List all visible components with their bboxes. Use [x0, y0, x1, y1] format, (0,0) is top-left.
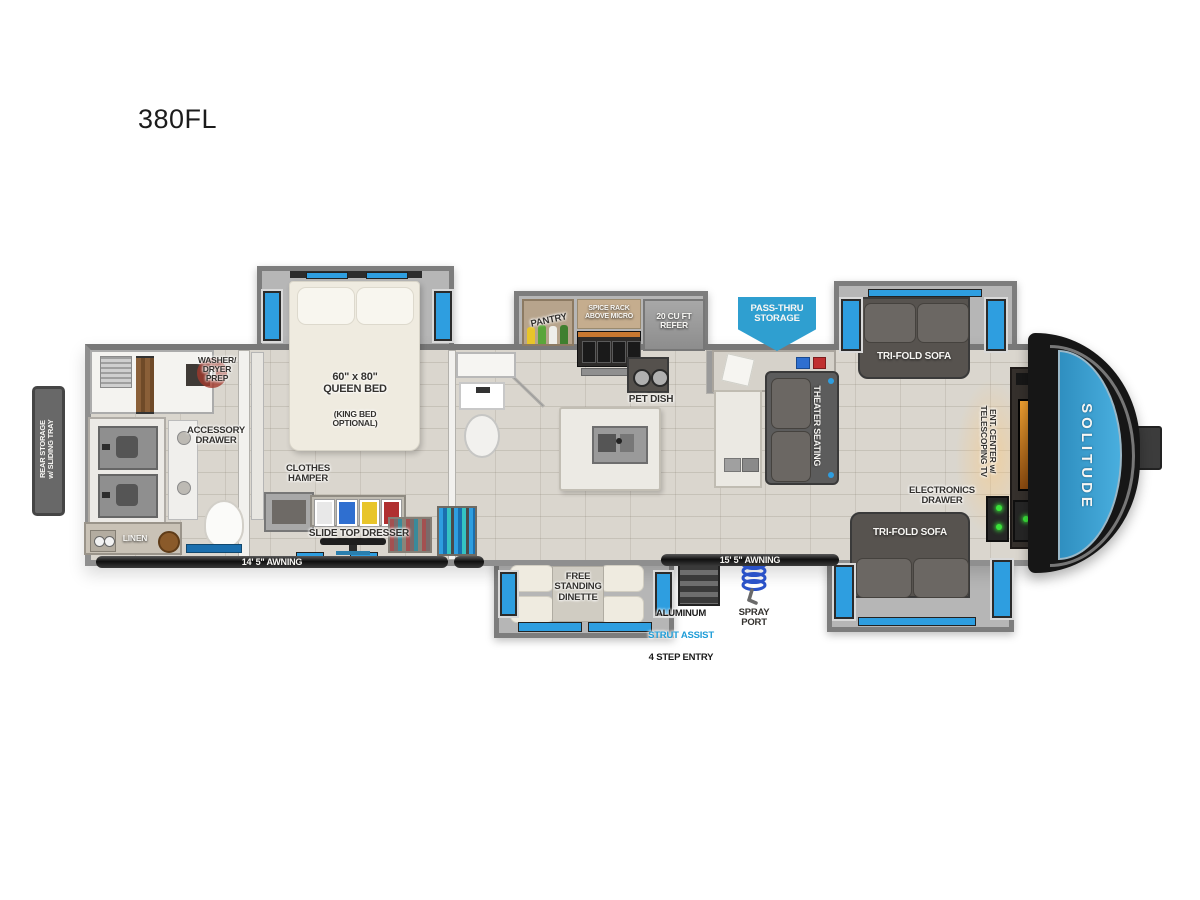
bedroom-tv-stand — [320, 538, 386, 556]
electronics-panel-1 — [986, 496, 1009, 542]
spice-rack-label: SPICE RACK ABOVE MICRO — [575, 305, 643, 320]
vanity-sink-2 — [98, 474, 158, 518]
sofa-top-window-right — [986, 299, 1006, 351]
floorplan-canvas: 380FL REAR STORAGE w/ SLIDING TRAY WAS — [0, 0, 1200, 900]
awning-right-label: 15' 5" AWNING — [661, 554, 839, 566]
tri-fold-sofa-top-label: TRI-FOLD SOFA — [852, 352, 976, 363]
entry-line1: ALUMINUM — [638, 609, 724, 620]
awning-left-label: 14' 5" AWNING — [96, 556, 448, 568]
entry-line2: STRUT ASSIST — [638, 631, 724, 642]
bedroom-slide-window-strip — [306, 272, 348, 279]
pet-dish-drawer — [627, 357, 669, 393]
sofa-top-window-strip — [868, 289, 982, 297]
ent-center-label: ENT. CENTER w/ TELESCOPING TV — [979, 383, 997, 499]
sofa-bottom-window-strip — [858, 617, 976, 626]
awning-left-stub — [454, 556, 484, 568]
entry-label: ALUMINUM STRUT ASSIST 4 STEP ENTRY — [638, 598, 724, 674]
bed-label: 60" x 80" QUEEN BED (KING BED OPTIONAL) — [300, 360, 410, 440]
linen-label: LINEN — [118, 534, 152, 543]
bedroom-window-right — [434, 291, 452, 341]
refer-label: 20 CU FT REFER — [643, 312, 705, 330]
rear-storage-tray: REAR STORAGE w/ SLIDING TRAY — [32, 386, 65, 516]
electronics-drawer-label: ELECTRONICS DRAWER — [896, 486, 988, 507]
midbath-shower — [456, 352, 516, 378]
tri-fold-sofa-top — [858, 297, 970, 379]
slide-top-dresser-label: SLIDE TOP DRESSER — [300, 529, 418, 540]
floorplan-model-title: 380FL — [138, 104, 217, 135]
bath-toilet — [204, 500, 244, 548]
bath-cabinet-row: LINEN — [84, 522, 182, 555]
pillow-left — [297, 287, 355, 325]
bedroom-wardrobe — [437, 506, 477, 556]
pillow-right — [356, 287, 414, 325]
tri-fold-sofa-bottom-label: TRI-FOLD SOFA — [846, 528, 974, 539]
theater-seating — [765, 371, 839, 485]
clothes-hamper-label: CLOTHES HAMPER — [272, 464, 344, 485]
washer-port-icon — [90, 530, 116, 552]
peninsula-counter — [714, 390, 762, 488]
sofa-bottom-window-left — [834, 565, 854, 619]
bedroom-slide-window-strip2 — [366, 272, 408, 279]
bath-vanity — [88, 417, 166, 527]
rear-storage-label: REAR STORAGE w/ SLIDING TRAY — [39, 390, 55, 508]
tri-fold-sofa-bottom — [850, 512, 970, 598]
closet-basket — [100, 356, 132, 388]
island-sink — [592, 426, 648, 464]
dinette-window-left — [500, 572, 517, 616]
front-cap: SOLITUDE — [1028, 333, 1140, 573]
sofa-top-window-left — [841, 299, 861, 351]
dinette-label: FREE STANDING DINETTE — [540, 572, 616, 603]
counter-items — [796, 357, 826, 369]
awning-left: 14' 5" AWNING — [96, 556, 448, 568]
midbath-toilet — [464, 414, 500, 458]
bed-size-label: 60" x 80" QUEEN BED — [300, 372, 410, 396]
awning-right: 15' 5" AWNING — [661, 554, 839, 566]
spray-port-label: SPRAY PORT — [724, 608, 784, 629]
brand-logo: SOLITUDE — [1078, 403, 1094, 503]
pass-thru-label: PASS-THRU STORAGE — [738, 304, 816, 325]
bath-bowl-sink — [158, 531, 180, 553]
midbath-sink — [459, 382, 505, 410]
vanity-sink-1 — [98, 426, 158, 470]
dinette-window-strip-left — [518, 622, 582, 632]
clothes-hamper — [264, 492, 314, 532]
closet-rod — [136, 356, 154, 414]
theater-seating-label: THEATER SEATING — [811, 371, 821, 481]
entry-line3: 4 STEP ENTRY — [638, 653, 724, 664]
bedroom-window-left — [263, 291, 281, 341]
bath-mat — [186, 544, 242, 553]
washer-dryer-label: WASHER/ DRYER PREP — [184, 356, 250, 384]
bed-option-label: (KING BED OPTIONAL) — [300, 410, 410, 428]
pass-thru-arrow: PASS-THRU STORAGE — [738, 297, 816, 351]
kitchen-island — [559, 407, 661, 491]
accessory-drawer-label: ACCESSORY DRAWER — [172, 426, 260, 447]
sofa-bottom-window-right — [992, 560, 1012, 618]
pet-dish-label: PET DISH — [612, 395, 690, 406]
